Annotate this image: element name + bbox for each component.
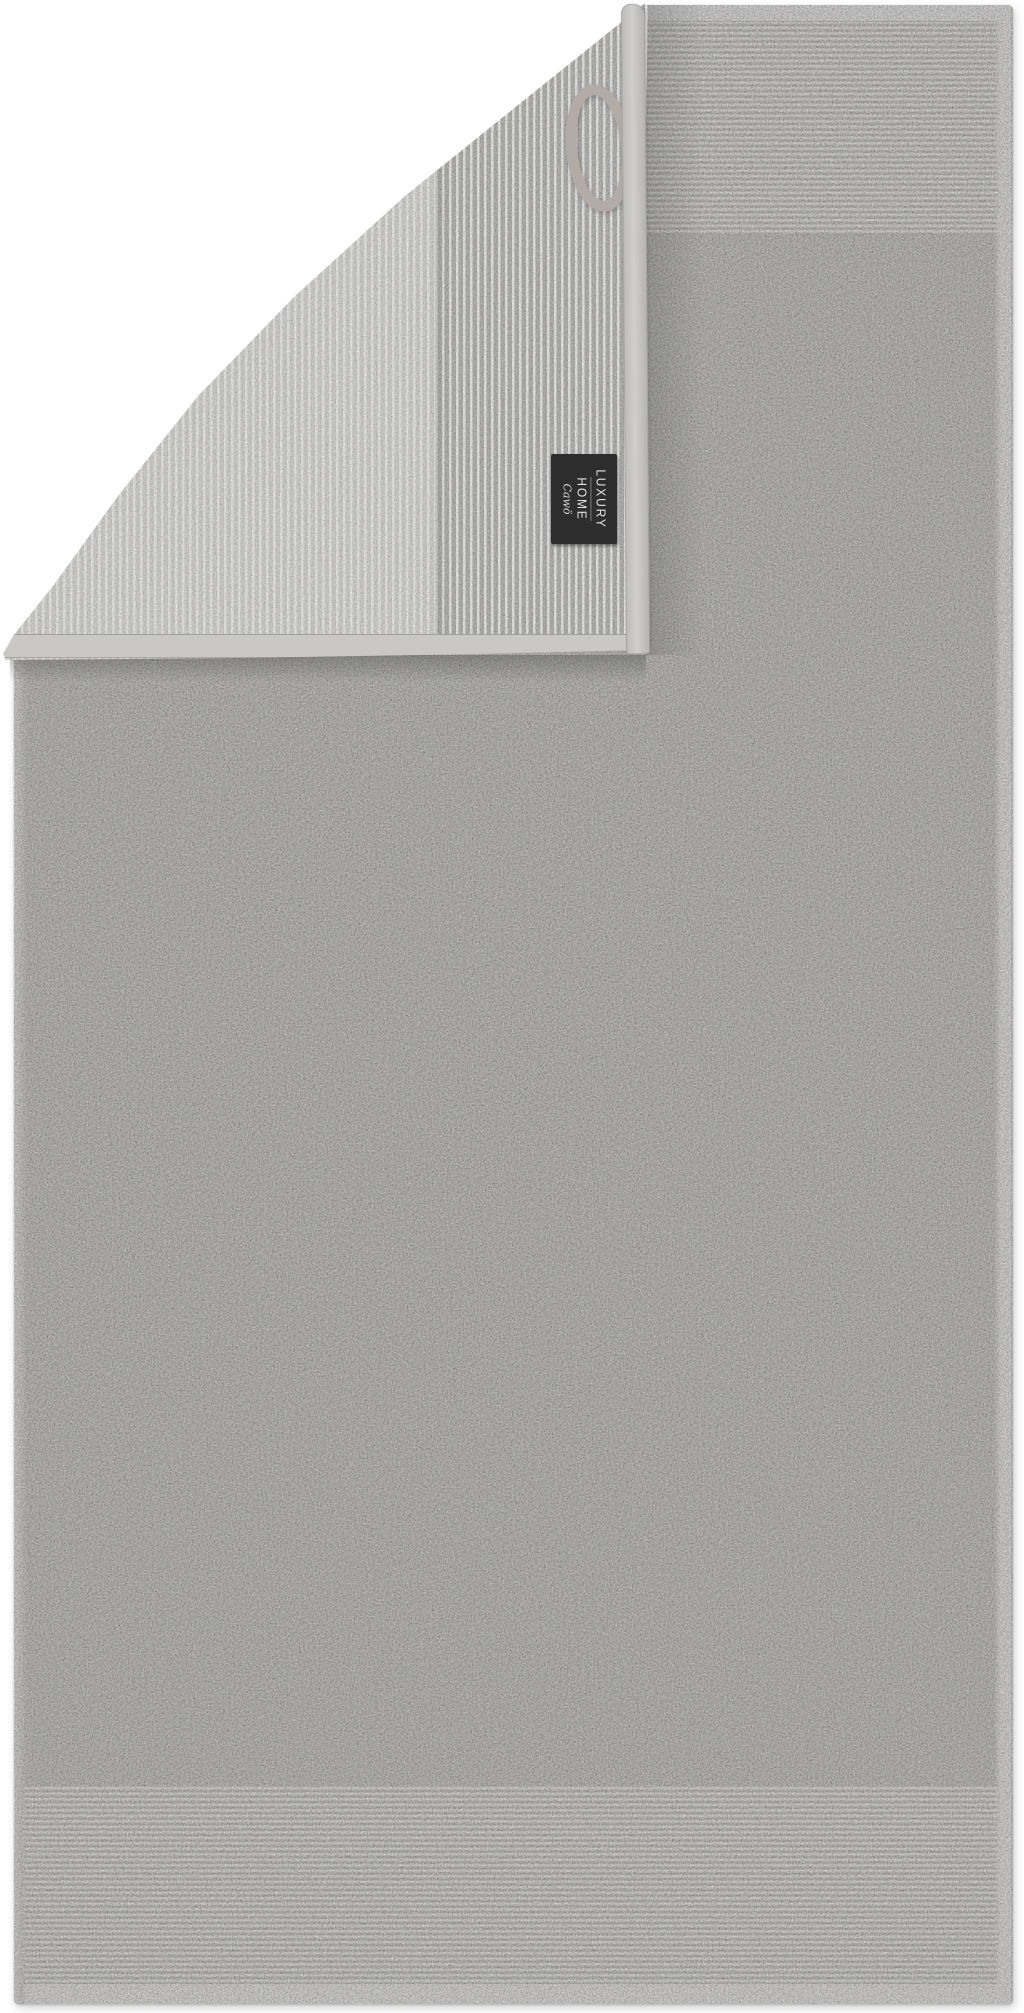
towel-bottom-hem [14,1983,1013,2004]
flap-edge-binding [621,4,650,654]
towel-bottom-stripe-band [14,1787,1013,1983]
tag-brand: Cawö [561,455,573,543]
brand-tag: LUXURY HOME Cawö [551,454,617,544]
page-background: LUXURY HOME Cawö [0,0,1024,2013]
flap-side-shadow [645,5,703,655]
tag-divider [591,477,592,521]
tag-line1: LUXURY [594,459,608,540]
towel-right-edge [994,5,1013,2004]
flap-under-shadow [10,655,646,691]
tag-line2: HOME [575,459,589,540]
brand-tag-text: LUXURY HOME Cawö [561,455,608,543]
